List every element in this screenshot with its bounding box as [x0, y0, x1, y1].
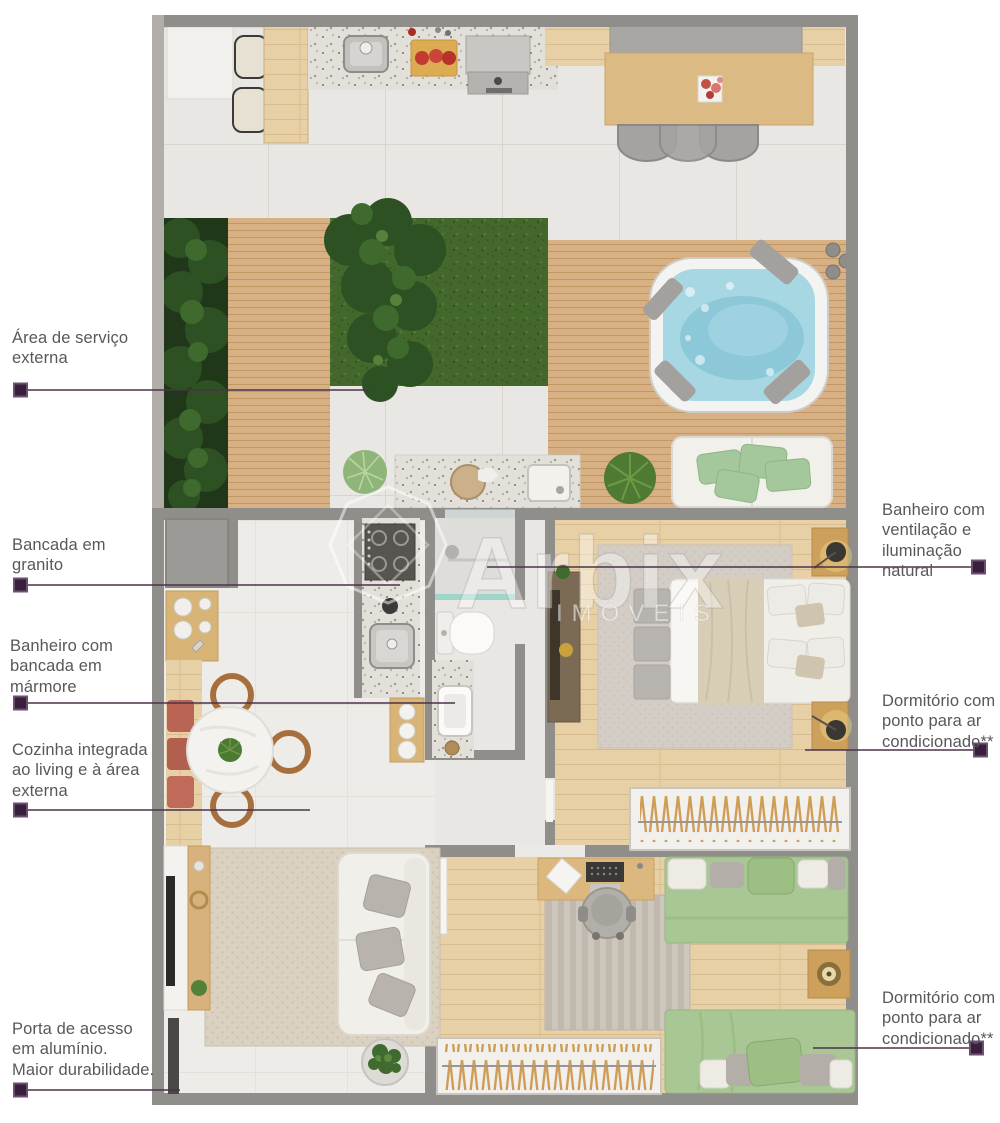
single-bed-top [665, 857, 848, 943]
kitchen-shelf [166, 591, 218, 661]
potted-plant [343, 450, 387, 494]
callout-banheiro-ventilacao: Banheiro com ventilação e iluminação nat… [882, 500, 1000, 582]
watermark-subtitle: IMÓVEIS [556, 600, 719, 627]
garden-bush [604, 452, 656, 504]
nightstand-top [812, 528, 852, 576]
outdoor-sink [344, 36, 388, 72]
cooktop [365, 524, 415, 580]
outdoor-sofa [672, 437, 832, 507]
living-plant [362, 1039, 408, 1085]
dining-bench [610, 25, 802, 55]
tv-console [164, 846, 210, 1010]
lower-cabinet [390, 698, 424, 762]
callout-dormitorio-ar-1: Dormitório com ponto para ar condicionad… [882, 691, 995, 752]
grill [466, 36, 530, 94]
callout-cozinha-integrada: Cozinha integrada ao living e à área ext… [12, 740, 148, 801]
master-wardrobe [630, 788, 850, 850]
flower-vase [698, 76, 723, 102]
bedside-table [808, 950, 850, 998]
fridge [166, 519, 228, 587]
nightstand-bottom [812, 702, 852, 750]
garden-bed-left [158, 218, 232, 512]
aluminum-access-door [168, 1018, 179, 1094]
callout-banheiro-marmore: Banheiro com bancada em mármore [10, 636, 113, 697]
callout-area-servico-externa: Área de serviço externa [12, 328, 128, 369]
callout-dormitorio-ar-2: Dormitório com ponto para ar condicionad… [882, 988, 995, 1049]
kitchen-sink [370, 624, 414, 668]
outdoor-area [152, 15, 858, 515]
service-sink [528, 465, 570, 501]
callout-bancada-granito: Bancada em granito [12, 535, 106, 576]
floor-plan-render: Arbix IMÓVEIS [0, 0, 1000, 1123]
dining-chairs [618, 125, 758, 161]
wood-deck-left [228, 218, 330, 508]
floor-plan-page: Arbix IMÓVEIS Área de serviço externa Ba… [0, 0, 1000, 1123]
bedroom-door-leaf [546, 780, 553, 822]
bedroom2-wardrobe [437, 1038, 661, 1094]
living-sofa [338, 853, 430, 1035]
callout-porta-acesso: Porta de acesso em alumínio. Maior durab… [12, 1019, 154, 1080]
bar-counter [264, 25, 308, 143]
bathroom-vanity [432, 660, 474, 758]
single-bed-bottom [665, 1010, 855, 1093]
